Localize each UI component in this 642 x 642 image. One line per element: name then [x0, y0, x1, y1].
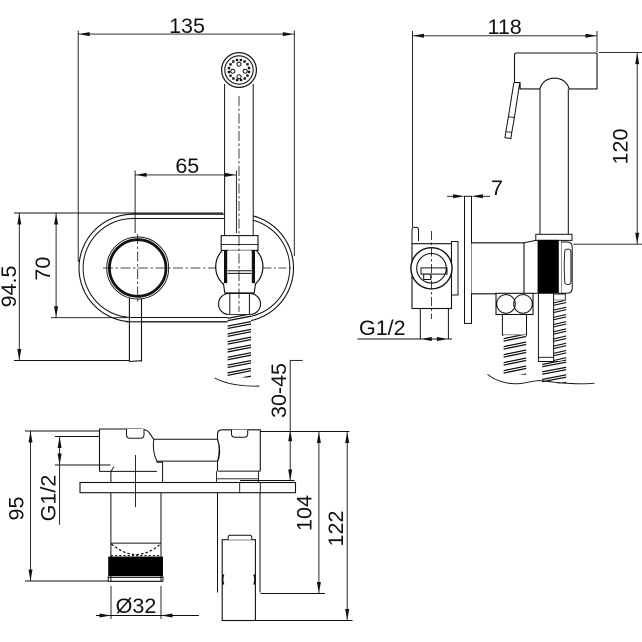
svg-text:7: 7 — [491, 176, 503, 200]
svg-text:95: 95 — [5, 497, 29, 521]
svg-text:65: 65 — [175, 154, 199, 178]
svg-text:135: 135 — [169, 14, 205, 38]
svg-text:Ø32: Ø32 — [116, 594, 157, 618]
svg-text:G1/2: G1/2 — [37, 475, 61, 522]
svg-text:122: 122 — [324, 511, 348, 547]
svg-text:94.5: 94.5 — [0, 266, 21, 308]
svg-text:30-45: 30-45 — [267, 363, 291, 418]
svg-text:118: 118 — [487, 15, 521, 39]
svg-text:104: 104 — [293, 495, 317, 531]
svg-text:120: 120 — [609, 129, 633, 165]
svg-text:G1/2: G1/2 — [359, 316, 406, 340]
svg-text:70: 70 — [31, 257, 55, 281]
